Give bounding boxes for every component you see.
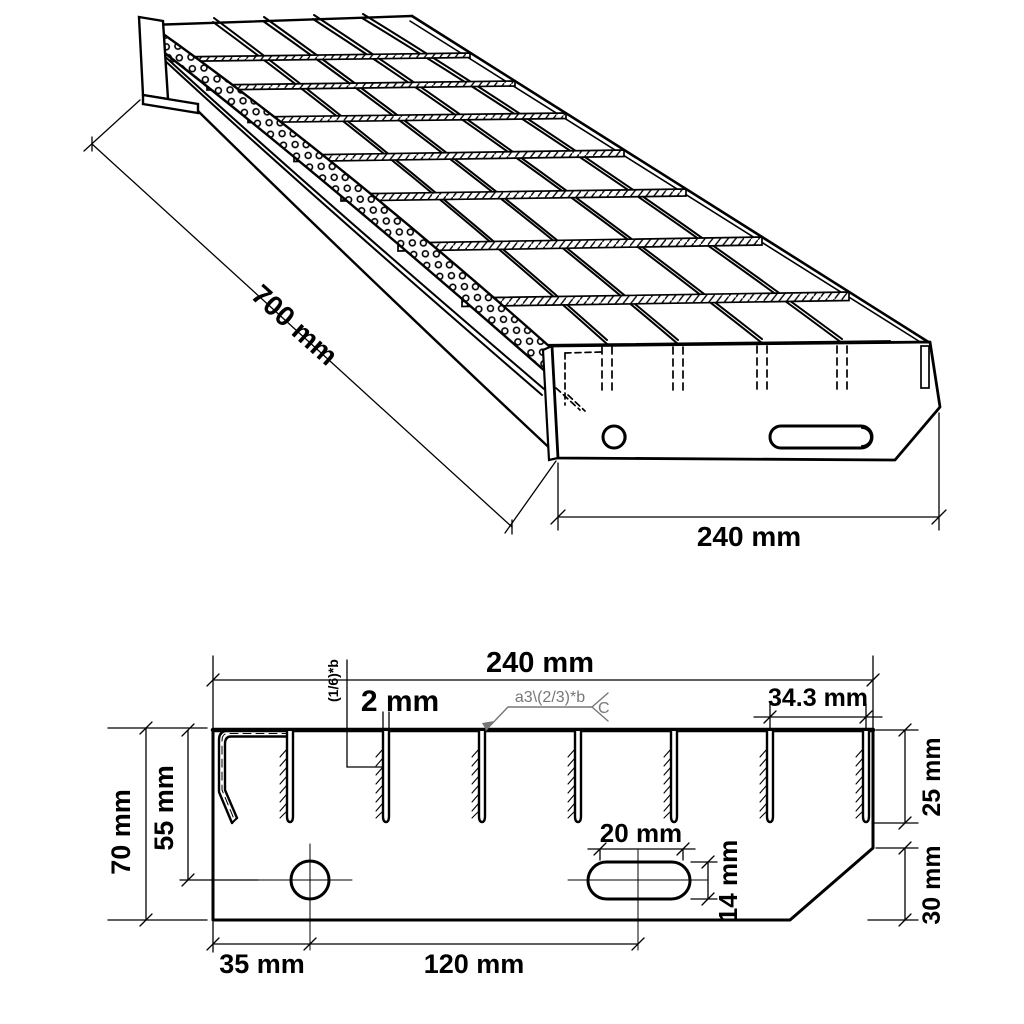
dim-label-hole-center-y: 55 mm [149,765,179,851]
isometric-view: 700 mm 240 mm [84,14,946,552]
dim-label-bar-thickness: 2 mm [361,685,439,718]
nosing-front-folds [160,52,557,455]
dim-label-slot-height: 14 mm [713,840,743,922]
dim-label-plate-height: 70 mm [106,789,136,875]
weld-symbol-text: a3\(2/3)*b [515,689,585,706]
near-end-plate [543,342,940,460]
dim-label-bar-spacing: 34.3 mm [768,684,868,712]
dim-label-width-iso: 240 mm [697,521,801,552]
dim-label-slot-center-x: 120 mm [424,949,525,979]
note-rotated-b: (1/6)*b [325,659,341,702]
dim-label-width-section: 240 mm [486,647,594,679]
drawing-sheet: 700 mm 240 mm [0,0,1024,1024]
dim-label-bar-depth: 25 mm [918,737,946,816]
weld-symbol-tail: C [598,700,610,717]
dim-label-slot-length: 20 mm [600,818,682,848]
drawing-canvas: 700 mm 240 mm [0,0,1024,1024]
dim-label-chamfer: 30 mm [918,845,946,924]
dim-bottom-positions [207,922,644,952]
dim-label-hole-center-x: 35 mm [219,949,305,979]
end-plate-face [552,342,940,460]
section-view: 240 mm 2 mm (1/6)*b a3\(2/3)*b C 34. [106,647,946,979]
dim-bar-depth [872,724,918,829]
dim-chamfer [868,842,918,926]
dim-label-length-iso: 700 mm [246,279,344,372]
